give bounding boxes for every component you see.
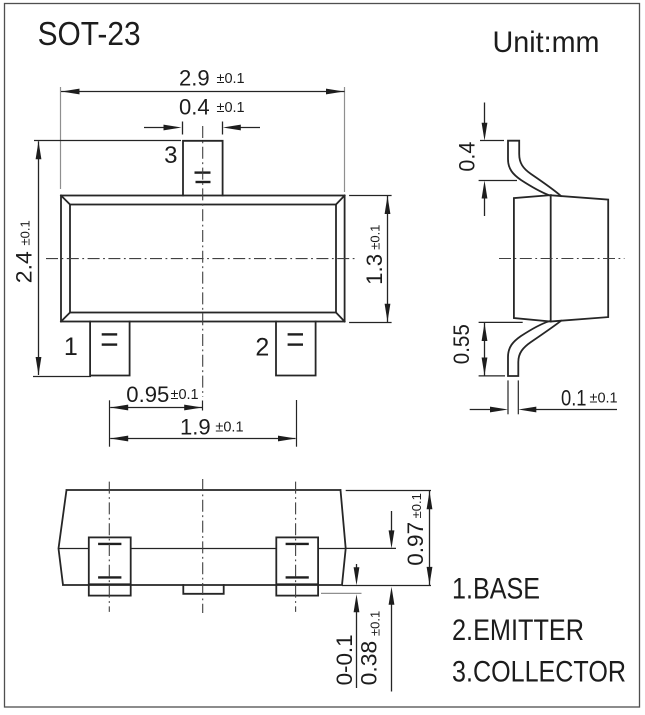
- svg-text:±0.1: ±0.1: [409, 493, 424, 518]
- svg-text:±0.1: ±0.1: [368, 225, 383, 250]
- svg-text:±0.1: ±0.1: [215, 419, 243, 435]
- svg-text:±0.1: ±0.1: [590, 391, 618, 407]
- svg-text:0.95: 0.95: [126, 382, 169, 407]
- svg-text:0.55: 0.55: [449, 324, 474, 364]
- svg-text:±0.1: ±0.1: [368, 611, 383, 636]
- svg-text:2: 2: [255, 334, 269, 362]
- svg-text:1.9: 1.9: [180, 414, 211, 439]
- svg-text:2.EMITTER: 2.EMITTER: [452, 614, 584, 647]
- svg-text:2.9: 2.9: [179, 66, 210, 91]
- svg-text:3: 3: [164, 142, 177, 169]
- svg-text:SOT-23: SOT-23: [38, 16, 141, 53]
- svg-text:1.BASE: 1.BASE: [452, 573, 540, 606]
- svg-text:1.3: 1.3: [362, 254, 387, 285]
- svg-text:0.4: 0.4: [455, 142, 480, 172]
- svg-text:2.4: 2.4: [12, 251, 37, 283]
- svg-text:0.4: 0.4: [179, 95, 210, 120]
- svg-text:±0.1: ±0.1: [217, 71, 245, 87]
- svg-text:0.38: 0.38: [357, 641, 382, 686]
- svg-text:1: 1: [64, 333, 78, 361]
- svg-text:Unit:mm: Unit:mm: [493, 26, 600, 59]
- svg-text:0-0.1: 0-0.1: [332, 634, 357, 685]
- svg-text:±0.1: ±0.1: [171, 387, 199, 403]
- svg-text:0.97: 0.97: [403, 522, 428, 566]
- svg-text:±0.1: ±0.1: [18, 220, 33, 245]
- svg-text:±0.1: ±0.1: [217, 100, 245, 116]
- svg-text:0.1: 0.1: [561, 385, 587, 410]
- svg-text:3.COLLECTOR: 3.COLLECTOR: [452, 656, 626, 689]
